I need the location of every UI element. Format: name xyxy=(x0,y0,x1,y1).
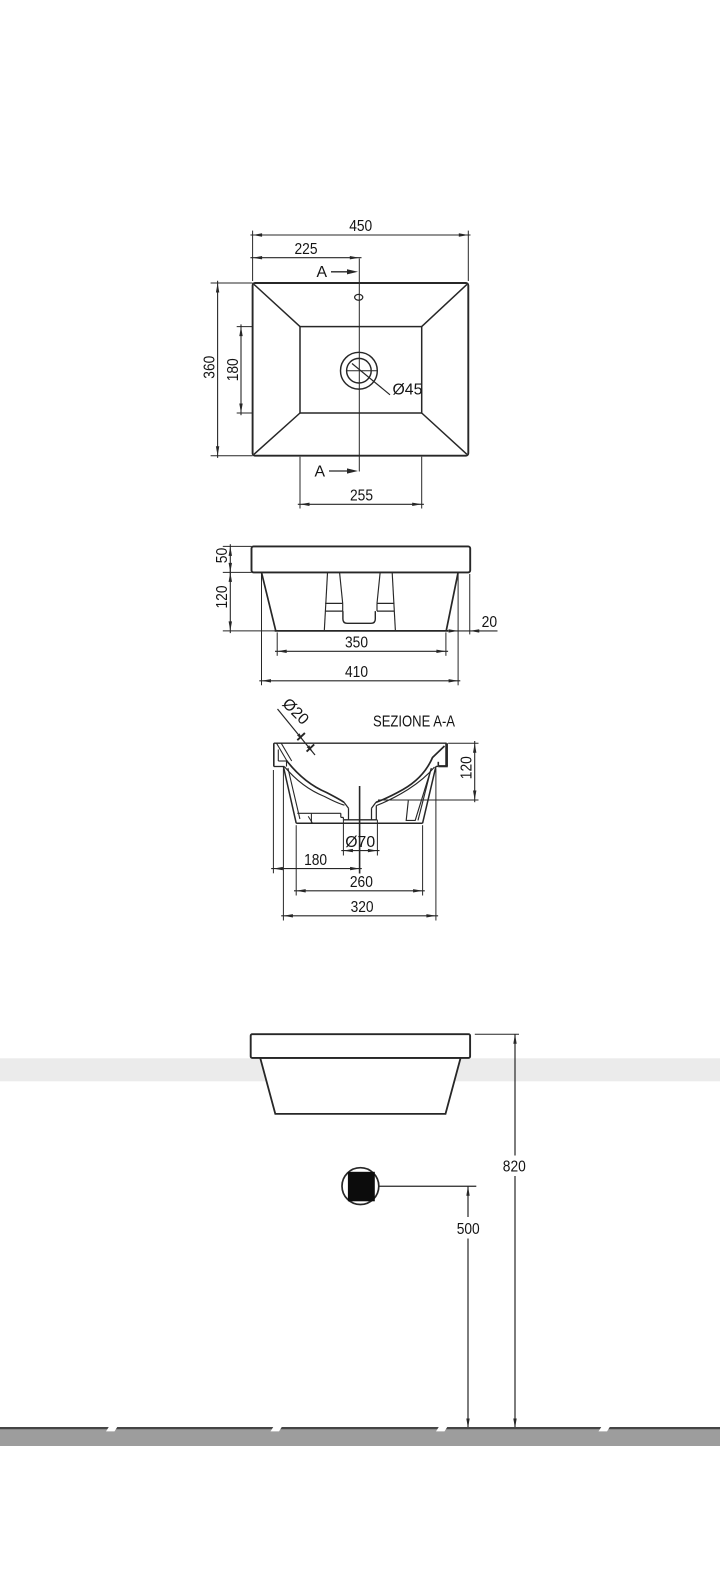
svg-text:180: 180 xyxy=(304,852,327,869)
svg-text:A: A xyxy=(314,463,325,480)
svg-text:180: 180 xyxy=(225,358,242,381)
svg-text:SEZIONE A-A: SEZIONE A-A xyxy=(373,714,455,731)
svg-text:320: 320 xyxy=(351,899,374,916)
svg-text:20: 20 xyxy=(482,614,498,631)
svg-text:260: 260 xyxy=(350,874,373,891)
svg-text:410: 410 xyxy=(345,664,368,681)
svg-text:255: 255 xyxy=(350,488,373,505)
svg-text:820: 820 xyxy=(503,1159,526,1176)
svg-text:A: A xyxy=(316,264,327,281)
svg-text:120: 120 xyxy=(458,756,475,779)
svg-text:120: 120 xyxy=(214,585,231,608)
svg-text:500: 500 xyxy=(457,1221,480,1238)
svg-text:50: 50 xyxy=(214,548,231,564)
svg-text:Ø20: Ø20 xyxy=(279,695,312,728)
svg-text:360: 360 xyxy=(202,356,219,379)
svg-text:350: 350 xyxy=(345,635,368,652)
svg-text:Ø70: Ø70 xyxy=(345,834,375,851)
svg-text:Ø45: Ø45 xyxy=(393,381,423,398)
svg-text:225: 225 xyxy=(295,241,318,258)
svg-text:450: 450 xyxy=(349,218,372,235)
